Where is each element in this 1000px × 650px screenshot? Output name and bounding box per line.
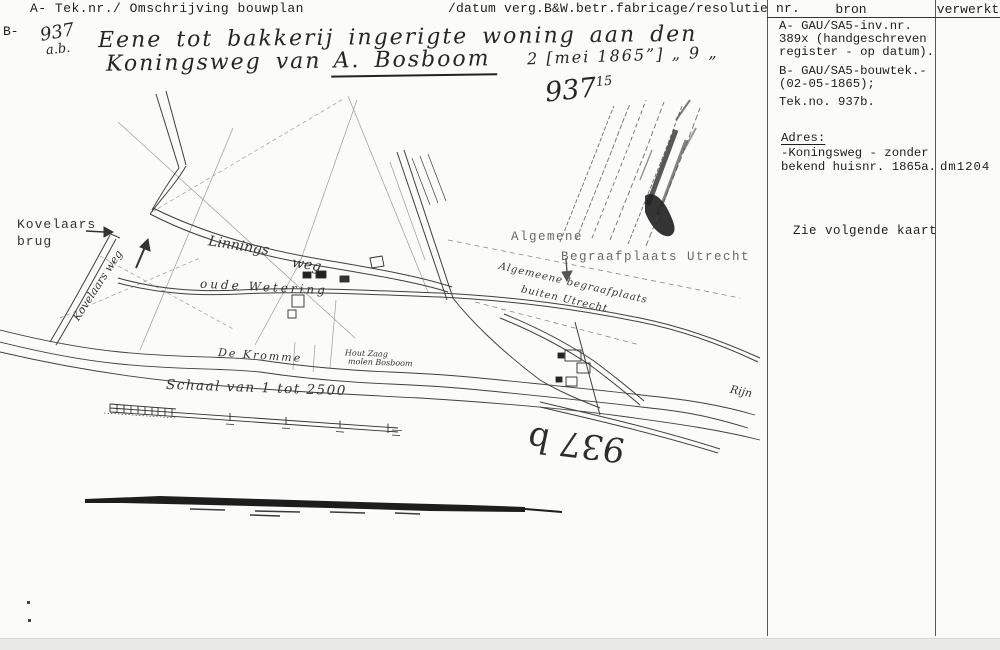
scale-bar bbox=[104, 404, 402, 436]
bron-line: (02-05-1865); bbox=[779, 78, 954, 91]
scan-speck bbox=[28, 619, 31, 622]
handwritten-number-sup: 15 bbox=[595, 74, 613, 91]
header-right-label: /datum verg.B&W.betr.fabricage/resolutie… bbox=[448, 1, 800, 16]
table-divider-left bbox=[767, 0, 768, 636]
scan-edge-strip bbox=[0, 638, 1000, 650]
column-header-verwerkt: verwerkt bbox=[936, 2, 1000, 17]
map-label-begraafplaats-utrecht: Begraafplaats Utrecht bbox=[561, 250, 750, 264]
handwritten-tek-number-suffix: a.b. bbox=[45, 41, 71, 58]
map-label-kovelaarsbrug: Kovelaars brug bbox=[17, 216, 96, 250]
parcel-lines bbox=[60, 96, 428, 372]
scanned-archive-card: { "header": { "left_label": "A- Tek.nr./… bbox=[0, 0, 1000, 649]
adres-overflow-code: dm1204 bbox=[940, 160, 990, 174]
river-kromme-rijn bbox=[0, 330, 760, 440]
ink-band bbox=[85, 496, 562, 516]
adres-heading: Adres: bbox=[781, 131, 936, 146]
handwritten-description-line2-prefix: Koningsweg van bbox=[106, 49, 322, 77]
map-label-algemene: Algemene bbox=[511, 230, 583, 244]
scan-speck bbox=[27, 601, 30, 604]
bron-panel: A- GAU/SA5-inv.nr. 389x (handgeschreven … bbox=[779, 20, 954, 109]
table-header-rule bbox=[767, 17, 1000, 18]
map-label-kovelaarsbrug-line2: brug bbox=[17, 233, 96, 250]
map-label-kovelaarsbrug-line1: Kovelaars bbox=[17, 216, 96, 233]
ink-smudge bbox=[640, 100, 696, 236]
bron-line: Tek.no. 937b. bbox=[779, 96, 954, 109]
handwritten-description-line2: Koningsweg vanA. Bosboom bbox=[106, 46, 497, 76]
roads bbox=[50, 91, 760, 453]
bron-line: B- GAU/SA5-bouwtek.- bbox=[779, 65, 954, 78]
bron-line: register - op datum). bbox=[779, 46, 954, 59]
column-header-bron: bron bbox=[767, 2, 935, 17]
handwritten-number: 937 bbox=[544, 72, 599, 108]
header-left-label: A- Tek.nr./ Omschrijving bouwplan bbox=[30, 1, 304, 16]
row-label-b: B- bbox=[3, 24, 19, 39]
adres-line: -Koningsweg - zonder bbox=[781, 146, 936, 161]
see-next-card-note: Zie volgende kaart bbox=[793, 224, 937, 238]
adres-line: bekend huisnr. 1865a. bbox=[781, 160, 936, 175]
handwritten-owner-name: A. Bosboom bbox=[331, 46, 496, 77]
adres-block: Adres: -Koningsweg - zonder bekend huisn… bbox=[781, 131, 936, 175]
illegible-handwriting-scribble bbox=[560, 100, 700, 246]
